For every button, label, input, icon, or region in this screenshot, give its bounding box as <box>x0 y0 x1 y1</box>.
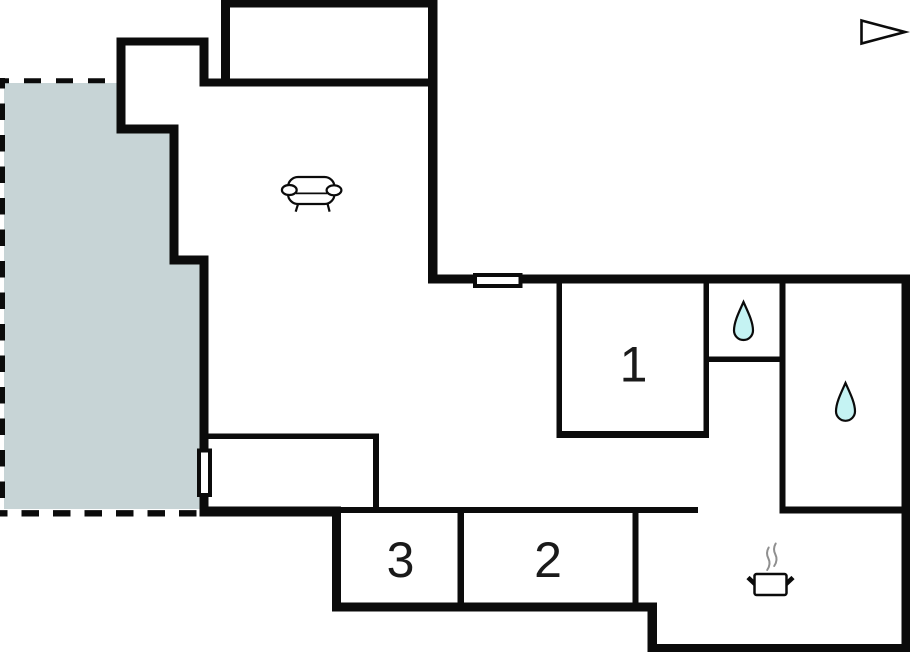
svg-text:3: 3 <box>387 532 415 588</box>
svg-text:2: 2 <box>534 532 562 588</box>
svg-text:1: 1 <box>620 337 648 393</box>
